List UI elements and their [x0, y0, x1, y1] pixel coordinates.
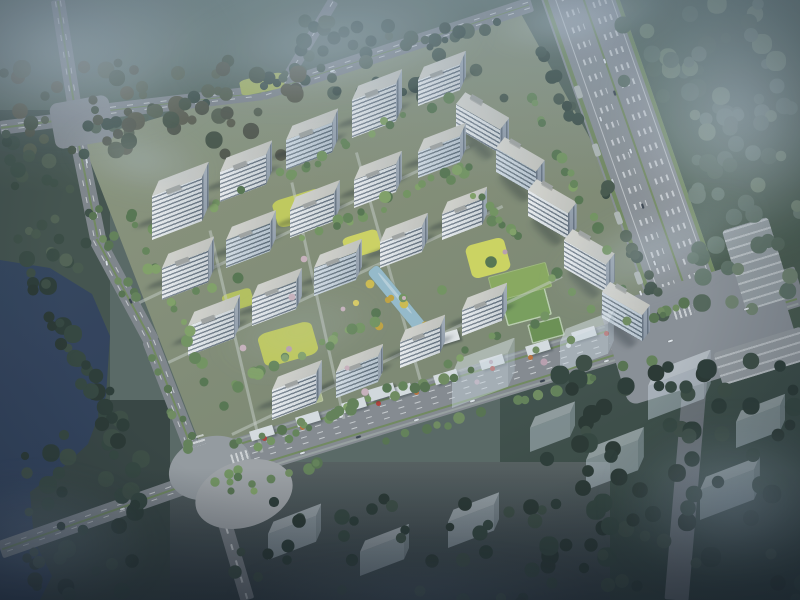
future-phase-massing [268, 503, 321, 560]
street-stall [528, 355, 533, 360]
future-phase-massing [700, 456, 760, 520]
residential-tower-2 [220, 140, 272, 202]
street-stall [338, 413, 343, 418]
residential-tower-1 [152, 162, 209, 240]
future-phase-massing [448, 492, 499, 548]
street-stall [300, 425, 305, 430]
residential-tower-16 [272, 360, 322, 420]
residential-tower-18 [400, 314, 445, 368]
residential-tower-4 [352, 69, 402, 138]
residential-tower-8 [290, 180, 340, 238]
future-phase-massing [648, 350, 711, 420]
future-phase-massing [360, 524, 409, 576]
tree-canopy-forest-se [0, 0, 6, 6]
residential-tower-15 [442, 186, 487, 240]
future-phase-massing [736, 394, 785, 448]
residential-tower-17 [336, 344, 383, 398]
future-phase-massing [452, 338, 515, 408]
residential-tower-6 [162, 236, 214, 300]
residential-tower-11 [188, 294, 240, 356]
aerial-render-stage: Aerial architectural rendering of a resi… [0, 0, 800, 600]
street-stall [414, 390, 419, 395]
residential-tower-3 [286, 108, 338, 170]
future-phase-massing [560, 310, 614, 372]
residential-tower-13 [314, 239, 362, 296]
residential-tower-14 [380, 213, 428, 268]
residential-tower-12 [252, 268, 302, 326]
residential-tower-19 [462, 282, 507, 336]
residential-tower-9 [354, 151, 402, 208]
residential-tower-10 [418, 123, 466, 178]
future-phase-massing [586, 427, 644, 490]
future-phase-massing [530, 401, 575, 452]
residential-tower-7 [226, 210, 276, 268]
